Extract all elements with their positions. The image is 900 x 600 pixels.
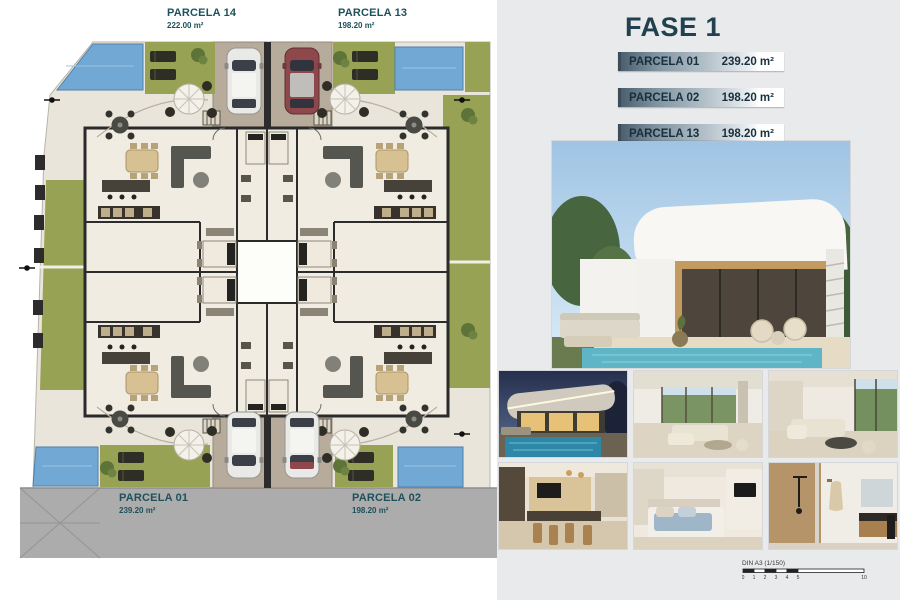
svg-text:2: 2 bbox=[764, 575, 767, 581]
row-label: PARCELA 02 bbox=[629, 92, 699, 104]
site-plan-drawing bbox=[0, 0, 497, 600]
row-label: PARCELA 13 bbox=[629, 128, 699, 140]
thumb-kitchen-dining-photo bbox=[499, 463, 627, 549]
street bbox=[20, 488, 497, 558]
thumb-bathroom-photo bbox=[769, 463, 897, 549]
phase-panel: FASE 1 PARCELA 01 239.20 m² PARCELA 02 1… bbox=[497, 0, 900, 600]
table-row: PARCELA 01 239.20 m² bbox=[618, 52, 784, 71]
photo-grid bbox=[499, 371, 897, 549]
svg-text:5: 5 bbox=[797, 575, 800, 581]
parcel-label-01: PARCELA 01 239.20 m² bbox=[119, 493, 188, 515]
parcel-13-area: 198.20 m² bbox=[338, 22, 407, 30]
svg-text:4: 4 bbox=[786, 575, 789, 581]
parcel-label-14: PARCELA 14 222.00 m² bbox=[167, 8, 236, 30]
phase-title: FASE 1 bbox=[625, 12, 721, 43]
row-value: 198.20 m² bbox=[722, 92, 774, 104]
parcel-14-area: 222.00 m² bbox=[167, 22, 236, 30]
parcel-13-name: PARCELA 13 bbox=[338, 8, 407, 20]
thumb-living-terrace-photo bbox=[634, 371, 762, 457]
parcel-02-area: 198.20 m² bbox=[352, 507, 421, 515]
central-courtyard bbox=[237, 241, 297, 303]
parcel-label-13: PARCELA 13 198.20 m² bbox=[338, 8, 407, 30]
row-label: PARCELA 01 bbox=[629, 56, 699, 68]
svg-text:0: 0 bbox=[742, 575, 745, 581]
svg-text:10: 10 bbox=[861, 575, 867, 581]
thumb-night-pool-photo bbox=[499, 371, 627, 457]
main-villa-photo bbox=[552, 141, 850, 368]
thumb-living-room-photo bbox=[769, 371, 897, 457]
scale-bar: DIN A3 (1/150) 0 1 2 3 4 5 10 bbox=[742, 560, 876, 587]
thumb-bedroom-photo bbox=[634, 463, 762, 549]
scale-bar-graphic: 0 1 2 3 4 5 10 bbox=[742, 568, 876, 582]
parcel-14-name: PARCELA 14 bbox=[167, 8, 236, 20]
parcel-02-name: PARCELA 02 bbox=[352, 493, 421, 505]
svg-text:3: 3 bbox=[775, 575, 778, 581]
site-plan: PARCELA 14 222.00 m² PARCELA 13 198.20 m… bbox=[0, 0, 497, 600]
parcel-label-02: PARCELA 02 198.20 m² bbox=[352, 493, 421, 515]
brochure-page: { "plan": { "parcels": [ {"name": "PARCE… bbox=[0, 0, 900, 600]
row-value: 239.20 m² bbox=[722, 56, 774, 68]
table-row: PARCELA 02 198.20 m² bbox=[618, 88, 784, 107]
parcel-01-name: PARCELA 01 bbox=[119, 493, 188, 505]
svg-text:1: 1 bbox=[753, 575, 756, 581]
parcel-01-area: 239.20 m² bbox=[119, 507, 188, 515]
scale-bar-label: DIN A3 (1/150) bbox=[742, 560, 876, 567]
row-value: 198.20 m² bbox=[722, 128, 774, 140]
